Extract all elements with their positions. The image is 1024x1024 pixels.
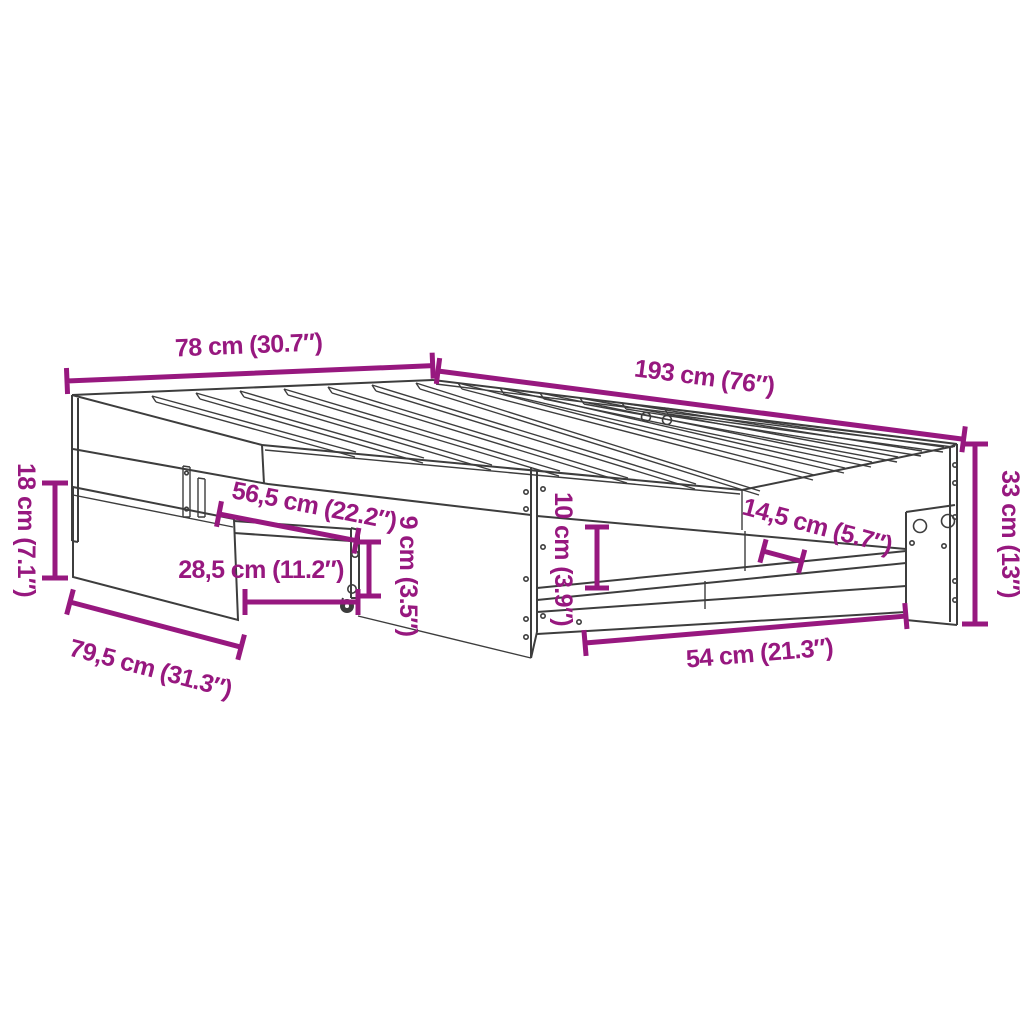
slat-deck <box>152 383 944 495</box>
dimension-head-width-label: 78 cm (30.7″) <box>174 328 323 362</box>
dimension-pullout-depth: 79,5 cm (31.3″) <box>55 589 246 703</box>
dimension-pullout-panel-height: 18 cm (7.1″) <box>12 463 68 597</box>
pullout-panel <box>73 487 238 620</box>
dimension-frame-height-label: 33 cm (13″) <box>996 470 1024 598</box>
dimension-pullout-panel-height-label: 18 cm (7.1″) <box>12 463 40 597</box>
dimension-shelf-depth: 14,5 cm (5.7″) <box>730 493 895 595</box>
bed-frame-diagram: 78 cm (30.7″) 193 cm (76″) 33 cm (13″) 1… <box>0 0 1024 1024</box>
dimension-frame-height: 33 cm (13″) <box>962 444 1024 624</box>
dimension-pullout-depth-label: 79,5 cm (31.3″) <box>66 634 235 704</box>
dimension-pullout-rail-height-label: 9 cm (3.5″) <box>394 516 422 637</box>
dimension-shelf-gap-height-label: 10 cm (3.9″) <box>549 492 577 626</box>
pullout-rail <box>234 521 531 658</box>
dimension-pullout-front-width-label: 28,5 cm (11.2″) <box>178 556 344 584</box>
dimension-pullout-rail-length: 56,5 cm (22.2″) <box>217 475 400 561</box>
dimension-bottom-opening-width-label: 54 cm (21.3″) <box>685 633 834 673</box>
dimension-frame-length-label: 193 cm (76″) <box>633 354 777 400</box>
dimension-head-width: 78 cm (30.7″) <box>65 324 433 394</box>
bed-frame-diagram-page: 78 cm (30.7″) 193 cm (76″) 33 cm (13″) 1… <box>0 0 1024 1024</box>
dimension-shelf-gap-height: 10 cm (3.9″) <box>549 492 609 626</box>
dimension-pullout-front-width: 28,5 cm (11.2″) <box>178 556 358 615</box>
foot-panel <box>906 444 957 625</box>
